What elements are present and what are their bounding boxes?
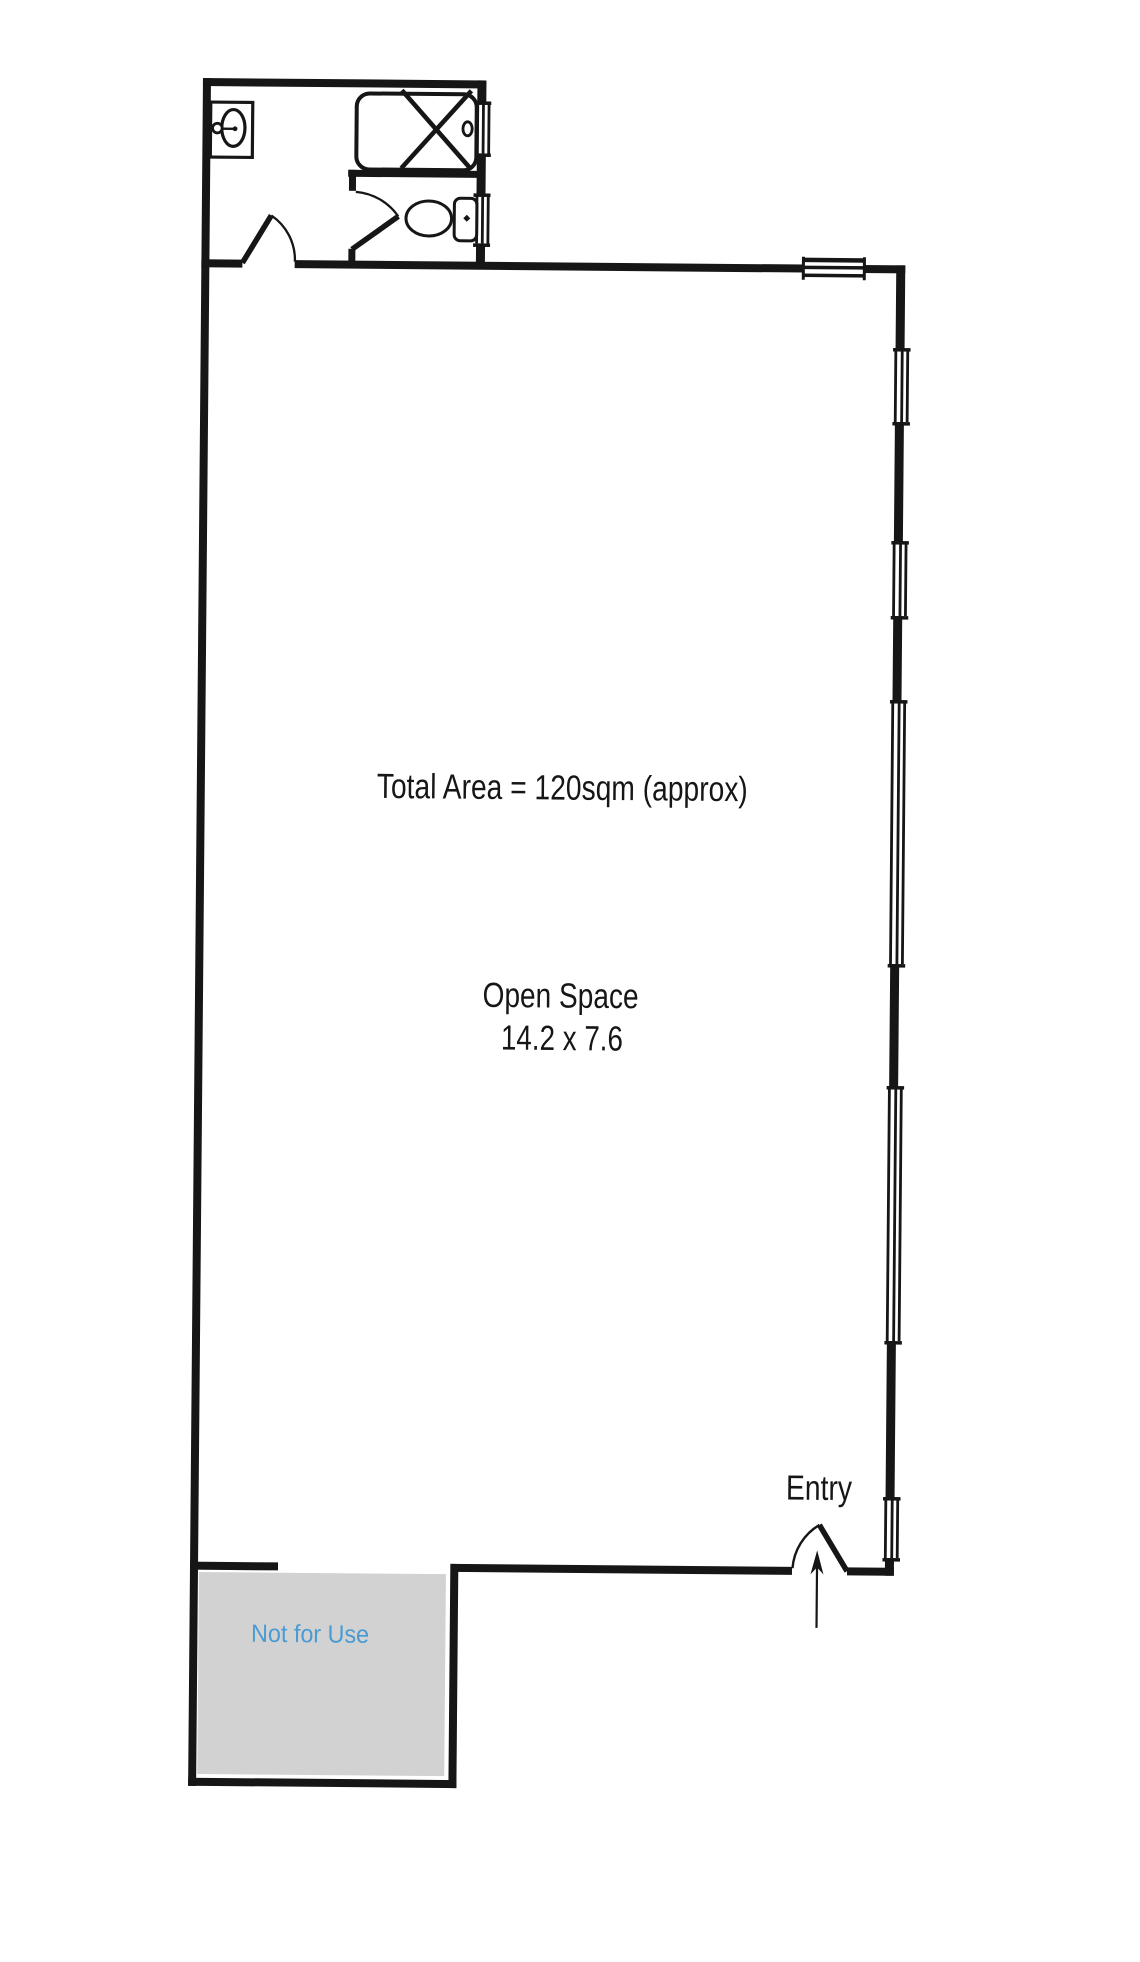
svg-text:Open Space: Open Space [482, 976, 638, 1016]
svg-text:Entry: Entry [786, 1469, 853, 1509]
svg-text:14.2 x 7.6: 14.2 x 7.6 [501, 1019, 623, 1059]
svg-text:Total Area = 120sqm (approx): Total Area = 120sqm (approx) [377, 767, 748, 809]
svg-text:Not for Use: Not for Use [251, 1620, 369, 1649]
